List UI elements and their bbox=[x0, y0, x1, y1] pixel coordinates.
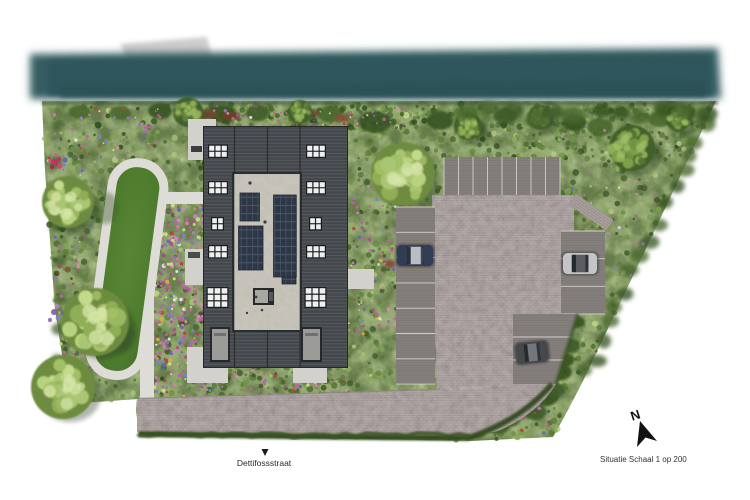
svg-text:Dettifossstraat: Dettifossstraat bbox=[237, 458, 292, 468]
svg-text:Situatie Schaal 1 op 200: Situatie Schaal 1 op 200 bbox=[600, 455, 687, 464]
